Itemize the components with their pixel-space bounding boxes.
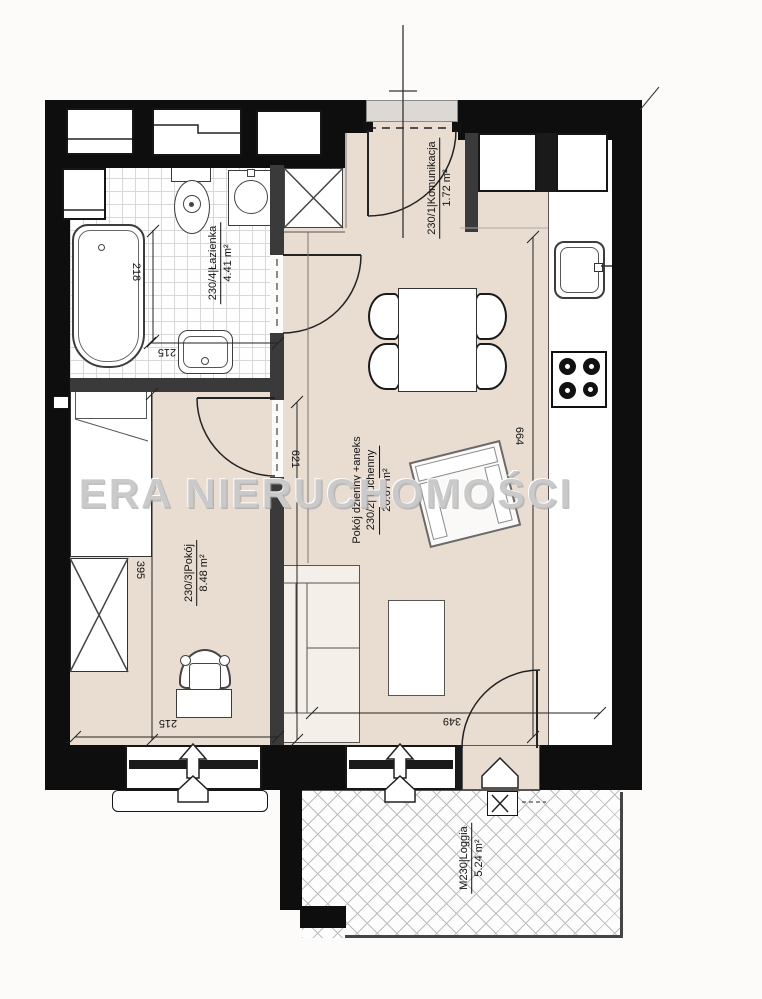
room-label-loggia-name: M230|Loggia — [457, 822, 472, 893]
room-label-pokoj-area: 8.48 m² — [199, 554, 211, 591]
bathtub — [72, 224, 145, 368]
fridge-cabinet-left — [478, 133, 537, 192]
pokoj-wardrobe — [70, 558, 128, 672]
room-label-komunikacja: 230/1|Komunikacja 1.72 m² — [425, 137, 455, 238]
window-left-wall — [62, 168, 106, 220]
wall-kitchen-nook — [465, 133, 478, 232]
fridge-cabinet-right — [556, 133, 608, 192]
room-label-komunikacja-name: 230/1|Komunikacja — [425, 137, 440, 238]
window-top-c — [256, 110, 322, 156]
dim-kitchen-run: 664 — [513, 427, 525, 445]
loggia-wall-left — [280, 790, 302, 910]
burner-dot — [588, 387, 593, 392]
dim-pokoj-length: 395 — [134, 561, 146, 579]
room-label-loggia-area: 5.24 m² — [474, 839, 486, 876]
entry-threshold — [366, 100, 458, 122]
window-door-divider — [456, 745, 462, 790]
burner-dot — [565, 364, 570, 369]
room-label-bathroom-name: 230/4|Łazienka — [206, 222, 221, 304]
desk — [176, 689, 232, 718]
wall-bath-right-upper — [270, 165, 284, 255]
window-top-a — [66, 108, 134, 155]
floorplan-canvas: 230/1|Komunikacja 1.72 m² Pokój dzienny … — [0, 0, 762, 999]
cabinet-divider — [537, 133, 556, 192]
room-label-bathroom: 230/4|Łazienka 4.41 m² — [206, 222, 236, 304]
loggia-wall-step — [300, 906, 346, 928]
room-label-loggia: M230|Loggia 5.24 m² — [457, 822, 487, 893]
kitchen-tap — [594, 263, 603, 272]
window-living-bar — [349, 760, 453, 769]
toilet-dot — [189, 202, 194, 207]
dim-bathtub-length: 218 — [130, 263, 142, 281]
wall-pokoj-top — [70, 378, 284, 392]
wall-bottom-mid — [262, 745, 345, 790]
wall-bottom-left — [45, 745, 127, 790]
toilet-bowl — [174, 180, 210, 234]
wall-entry-jamb — [345, 100, 368, 133]
bed-pillow — [75, 389, 147, 419]
washbasin-bowl — [234, 180, 268, 214]
wall-bottom-right — [540, 745, 642, 790]
washing-machine — [178, 330, 233, 374]
wall-right — [612, 100, 642, 790]
dim-bathroom-width: 215 — [158, 346, 176, 358]
stove — [551, 351, 607, 408]
burner-dot — [589, 364, 594, 369]
dining-chair — [368, 343, 401, 390]
bathtub-inner — [78, 230, 139, 362]
window-pokoj-sill — [112, 790, 268, 812]
dining-table — [398, 288, 477, 392]
loggia-right-line — [620, 792, 623, 938]
room-label-pokoj-name: 230/3|Pokój — [182, 540, 197, 606]
desk-chair-seat — [189, 663, 221, 691]
wall-niche-left — [53, 396, 69, 409]
room-label-pokoj: 230/3|Pokój 8.48 m² — [182, 540, 212, 606]
window-pokoj-bar — [129, 760, 258, 769]
washbasin — [228, 170, 274, 226]
hall-wardrobe — [284, 168, 343, 228]
balcony-door — [462, 745, 540, 790]
dim-living-length: 621 — [289, 450, 301, 468]
dining-chair — [368, 293, 401, 340]
sofa — [283, 565, 360, 743]
bathtub-drain — [98, 244, 105, 251]
washbasin-tap — [247, 169, 255, 177]
kitchen-sink — [554, 241, 605, 299]
window-top-b — [152, 108, 242, 156]
washing-machine-knob — [201, 357, 209, 365]
coffee-table — [388, 600, 445, 696]
room-label-bathroom-area: 4.41 m² — [223, 244, 235, 281]
burner-dot — [565, 388, 570, 393]
watermark: ERA NIERUCHOMOŚCI — [10, 470, 642, 518]
balcony-door-box — [487, 791, 518, 816]
loggia-bottom-line — [345, 935, 622, 938]
dim-pokoj-width: 215 — [159, 717, 177, 729]
room-label-komunikacja-area: 1.72 m² — [442, 169, 454, 206]
dim-living-width: 349 — [443, 715, 461, 727]
